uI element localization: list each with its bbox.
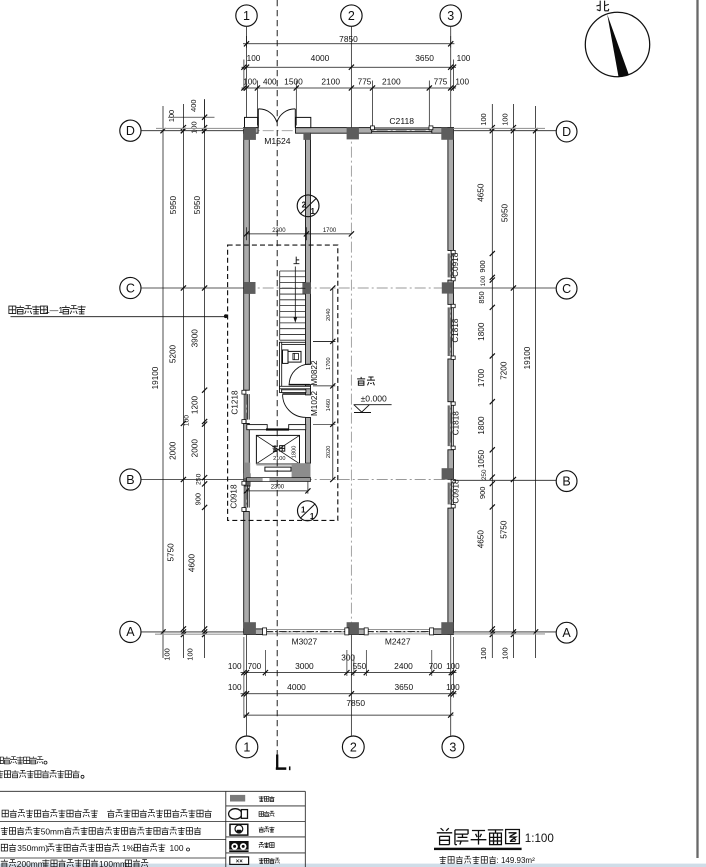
svg-text:4000: 4000 [311, 53, 330, 63]
svg-text:1:100: 1:100 [525, 832, 554, 845]
svg-text:C0918: C0918 [230, 484, 239, 509]
svg-text:1—1: 1—1 [45, 305, 64, 315]
svg-text:1: 1 [310, 512, 315, 521]
svg-text:1800: 1800 [477, 322, 486, 341]
svg-text:100: 100 [480, 275, 487, 286]
svg-text:1%: 1% [122, 843, 135, 853]
svg-text:100: 100 [243, 77, 257, 86]
svg-text:50mm: 50mm [41, 827, 64, 837]
svg-text:2100: 2100 [273, 456, 285, 462]
svg-text:100: 100 [167, 110, 176, 122]
svg-text:1460: 1460 [326, 399, 332, 411]
svg-text:900: 900 [478, 260, 487, 272]
svg-text:1700: 1700 [323, 228, 337, 234]
svg-text:2040: 2040 [326, 308, 332, 320]
svg-text:1700: 1700 [477, 368, 486, 387]
svg-text:100: 100 [190, 121, 199, 133]
svg-text:1700: 1700 [326, 357, 332, 369]
svg-text:100: 100 [163, 648, 172, 660]
svg-text:5950: 5950 [193, 196, 202, 215]
svg-text:M3027: M3027 [292, 637, 318, 647]
svg-text:775: 775 [358, 77, 372, 86]
svg-text:1: 1 [310, 207, 315, 216]
svg-text:7850: 7850 [339, 34, 358, 44]
svg-text:4650: 4650 [477, 183, 486, 202]
svg-text:100: 100 [479, 113, 488, 125]
svg-text:3650: 3650 [415, 53, 434, 63]
svg-text:100: 100 [479, 647, 488, 659]
svg-text:C1218: C1218 [230, 390, 239, 415]
svg-text:D: D [126, 124, 135, 138]
svg-text:±0.000: ±0.000 [361, 393, 387, 403]
svg-text:5750: 5750 [500, 520, 509, 539]
svg-text:A: A [562, 626, 571, 640]
svg-text:4650: 4650 [477, 530, 486, 549]
svg-text:1: 1 [243, 9, 250, 23]
svg-text:C: C [126, 281, 135, 295]
svg-text:100: 100 [228, 662, 242, 671]
svg-text:100mm: 100mm [99, 859, 127, 867]
svg-text:100: 100 [446, 683, 460, 692]
svg-text:775: 775 [434, 77, 448, 86]
svg-text:1800: 1800 [292, 446, 298, 458]
svg-text:M0822: M0822 [310, 360, 319, 385]
svg-text:C0918: C0918 [451, 252, 460, 277]
svg-text:D: D [562, 125, 571, 139]
svg-text:1500: 1500 [284, 76, 303, 86]
svg-text:2020: 2020 [326, 446, 332, 458]
svg-text:100: 100 [500, 113, 509, 125]
svg-text:1: 1 [301, 506, 306, 515]
svg-text:5750: 5750 [166, 543, 175, 562]
svg-text:100: 100 [247, 54, 261, 63]
svg-text:1200: 1200 [190, 395, 199, 414]
svg-text:7200: 7200 [500, 361, 509, 380]
svg-text:A: A [126, 625, 135, 639]
svg-text:1: 1 [243, 740, 250, 754]
svg-text:400: 400 [189, 100, 198, 112]
svg-text:C1818: C1818 [451, 318, 460, 343]
svg-text:3650: 3650 [394, 682, 413, 692]
svg-text:100: 100 [183, 415, 190, 427]
svg-text:M1022: M1022 [310, 391, 319, 416]
svg-text:C1818: C1818 [451, 411, 460, 436]
svg-text:250: 250 [195, 473, 202, 485]
svg-text:700: 700 [429, 662, 443, 671]
svg-text:350mm): 350mm) [17, 843, 48, 853]
svg-text:C2118: C2118 [389, 116, 414, 126]
svg-text:2: 2 [350, 740, 357, 754]
svg-text:250: 250 [481, 469, 488, 480]
svg-text:3900: 3900 [190, 329, 199, 348]
svg-text:5950: 5950 [500, 203, 509, 222]
svg-text:2: 2 [348, 9, 355, 23]
svg-text:C: C [562, 282, 571, 296]
svg-text:100: 100 [457, 54, 471, 63]
svg-text:400: 400 [263, 77, 277, 86]
svg-text:××: ×× [236, 859, 244, 865]
svg-text:1800: 1800 [477, 416, 486, 435]
svg-text:2000: 2000 [190, 439, 199, 458]
svg-text:100: 100 [228, 683, 242, 692]
svg-text:550: 550 [353, 662, 367, 671]
svg-text:700: 700 [248, 662, 262, 671]
svg-text:3: 3 [449, 740, 456, 754]
svg-text:4600: 4600 [188, 553, 197, 572]
svg-text:3: 3 [447, 9, 454, 23]
svg-text:200mm: 200mm [17, 859, 45, 867]
svg-text:2100: 2100 [321, 76, 340, 86]
svg-text:19100: 19100 [151, 366, 160, 389]
svg-text:2100: 2100 [382, 76, 401, 86]
svg-text:2: 2 [302, 201, 307, 210]
svg-text:900: 900 [193, 493, 202, 505]
svg-text:2400: 2400 [394, 661, 413, 671]
svg-text:2300: 2300 [272, 228, 286, 234]
svg-text:7850: 7850 [346, 698, 365, 708]
svg-text:4000: 4000 [287, 682, 306, 692]
svg-text:5950: 5950 [169, 196, 178, 215]
svg-text:B: B [126, 473, 134, 487]
svg-text:850: 850 [477, 291, 486, 303]
svg-text:19100: 19100 [523, 346, 532, 369]
svg-text:2300: 2300 [271, 485, 285, 491]
svg-text:C0918: C0918 [451, 479, 460, 504]
svg-text:100: 100 [170, 843, 184, 853]
svg-text:100: 100 [500, 647, 509, 659]
svg-text:100: 100 [446, 662, 460, 671]
svg-text:100: 100 [185, 648, 194, 660]
svg-text:1050: 1050 [477, 449, 486, 468]
svg-text:M2427: M2427 [385, 637, 411, 647]
svg-text:900: 900 [478, 487, 487, 499]
svg-text:B: B [562, 474, 570, 488]
svg-text:2000: 2000 [169, 441, 178, 460]
svg-text:: 149.93m²: : 149.93m² [497, 856, 536, 865]
svg-text:3000: 3000 [295, 661, 314, 671]
svg-text:5200: 5200 [169, 344, 178, 363]
svg-text:100: 100 [455, 77, 469, 86]
